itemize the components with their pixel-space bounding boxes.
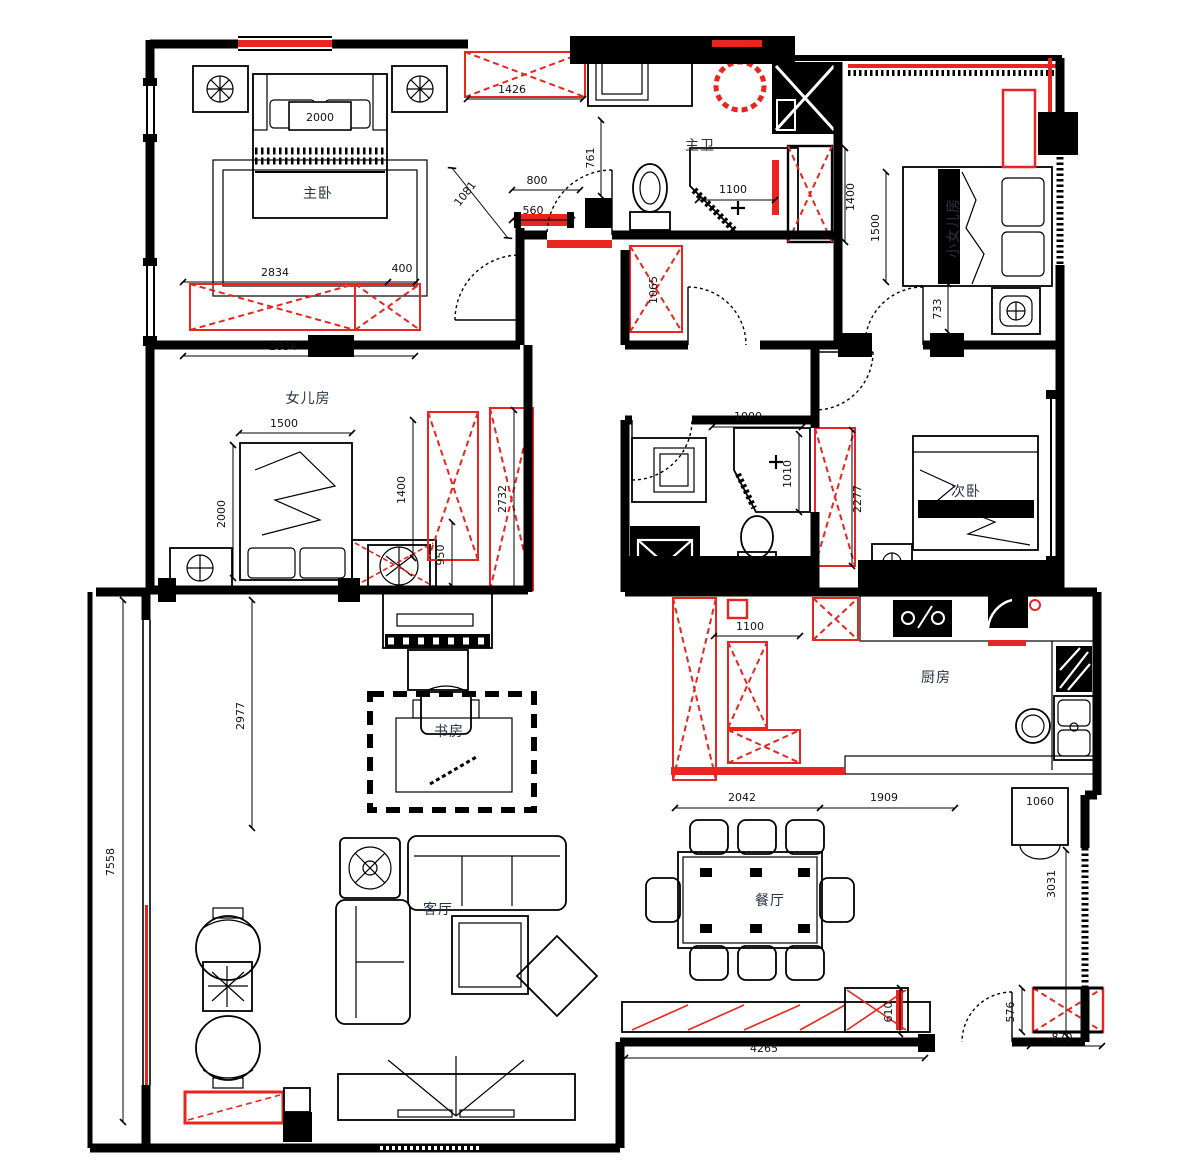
room-label-second-bedroom: 次卧 bbox=[951, 484, 981, 500]
kitchen-sink bbox=[1054, 696, 1094, 760]
planter-box bbox=[203, 962, 252, 1011]
kitchen-bin bbox=[1016, 709, 1050, 743]
tv-cabinet bbox=[338, 1056, 575, 1120]
bath-bin bbox=[585, 198, 612, 228]
chaise-sofa bbox=[336, 900, 410, 1024]
study-rug bbox=[370, 694, 534, 810]
dim-kitchen-counter: 1100 bbox=[736, 620, 764, 633]
wardrobe-x-master bbox=[190, 284, 420, 330]
dim-second-cabinet: 2277 bbox=[851, 485, 864, 513]
dim-entry-depth: 576 bbox=[1004, 1002, 1017, 1023]
dim-daughter-bed-l: 2000 bbox=[215, 500, 228, 528]
kitchen-cabinet-x3 bbox=[813, 598, 858, 640]
floor-plan-drawing: 2000 2834 400 2834 1426 761 800 560 1081… bbox=[0, 0, 1200, 1168]
bath2-vanity bbox=[632, 438, 706, 502]
side-table-diamond bbox=[517, 936, 597, 1016]
dim-hall-cabinet: 1065 bbox=[647, 276, 660, 304]
dim-dining-depth: 3031 bbox=[1045, 870, 1058, 898]
duct-shaft bbox=[772, 62, 838, 134]
door-young-daughter bbox=[865, 287, 923, 345]
dim-daughter-depth: 2732 bbox=[496, 485, 509, 513]
study-console bbox=[383, 590, 492, 648]
kitchen-cabinet-x2 bbox=[728, 730, 800, 763]
door-center-bath bbox=[632, 420, 692, 480]
column bbox=[283, 1112, 312, 1142]
lounge-chair-2 bbox=[196, 1016, 260, 1088]
sofa-three-seat bbox=[408, 836, 566, 910]
nightstand-left bbox=[193, 66, 248, 112]
dim-small-bed: 1500 bbox=[869, 214, 882, 242]
stove bbox=[893, 600, 952, 637]
room-label-living: 客厅 bbox=[423, 901, 453, 918]
door-second-bedroom bbox=[815, 352, 873, 410]
dim-kitchen-sink: 1060 bbox=[1026, 795, 1054, 808]
room-label-young-daughter: 小女儿房 bbox=[945, 198, 962, 258]
fridge bbox=[1056, 646, 1092, 692]
kitchen-red-counter-edge bbox=[671, 767, 845, 775]
door-hall bbox=[688, 287, 746, 345]
dim-entry-cabinet: 610 bbox=[882, 1002, 895, 1023]
dim-daughter-cabinet: 1400 bbox=[395, 476, 408, 504]
dim-daughter-top: 2834 bbox=[269, 340, 297, 353]
young-daughter-bed bbox=[903, 167, 1052, 286]
dim-master-offset: 400 bbox=[392, 262, 413, 275]
dim-closet-top: 1426 bbox=[498, 83, 526, 96]
dim-diagonal: 1081 bbox=[452, 179, 479, 209]
second-wardrobe-x bbox=[815, 428, 855, 566]
room-label-study: 书房 bbox=[434, 724, 464, 740]
room-label-master-bath: 主卫 bbox=[685, 138, 715, 154]
room-label-dining: 餐厅 bbox=[755, 893, 785, 909]
dim-kitchen-right: 1909 bbox=[870, 791, 898, 804]
room-label-master-bedroom: 主卧 bbox=[303, 186, 333, 202]
dim-living-left: 2977 bbox=[234, 702, 247, 730]
dim-small-side: 733 bbox=[931, 299, 944, 320]
desk-outline-red bbox=[1003, 90, 1035, 167]
dim-bath-depth: 761 bbox=[584, 148, 597, 169]
room-label-daughter: 女儿房 bbox=[286, 390, 331, 407]
kitchen-cabinet-x1 bbox=[728, 642, 767, 728]
study-desk bbox=[408, 650, 468, 690]
kitchen-red-square bbox=[728, 600, 747, 618]
entrance-cabinet-x bbox=[1033, 988, 1103, 1032]
dim-bath2-width: 1000 bbox=[734, 410, 762, 423]
door-master-bedroom bbox=[455, 255, 520, 320]
dim-bath-cabinet: 1400 bbox=[844, 183, 857, 211]
toilet-master bbox=[630, 164, 670, 230]
dim-daughter-dresser: 950 bbox=[434, 545, 447, 566]
dim-shower-width: 1100 bbox=[719, 183, 747, 196]
swivel-armchair bbox=[340, 838, 400, 898]
dim-living-height: 7558 bbox=[104, 848, 117, 876]
daughter-wardrobe-x1 bbox=[428, 412, 478, 560]
bath-door-sill bbox=[547, 240, 612, 248]
coffee-table bbox=[452, 916, 528, 994]
dim-bed-master: 2000 bbox=[306, 111, 334, 124]
room-label-kitchen: 厨房 bbox=[921, 670, 951, 686]
dim-entry-width: 870 bbox=[1052, 1031, 1073, 1044]
young-daughter-nightstand bbox=[992, 288, 1040, 334]
dim-master-width: 2834 bbox=[261, 266, 289, 279]
entry-tall-cabinet bbox=[845, 988, 908, 1032]
lounge-chair-1 bbox=[196, 908, 260, 980]
round-mirror bbox=[716, 62, 764, 110]
red-marker bbox=[1030, 600, 1040, 610]
kitchen-cabinet-tall bbox=[673, 598, 716, 780]
dim-bath2-depth: 1010 bbox=[781, 460, 794, 488]
daughter-nightstand bbox=[170, 548, 232, 592]
dim-kitchen-left: 2042 bbox=[728, 791, 756, 804]
dining-table-set bbox=[646, 820, 854, 980]
daughter-bed bbox=[240, 443, 352, 580]
dim-hall-width: 4265 bbox=[750, 1042, 778, 1055]
floor-plan-sheet: 2000 2834 400 2834 1426 761 800 560 1081… bbox=[0, 0, 1200, 1168]
dim-daughter-bed-w: 1500 bbox=[270, 417, 298, 430]
dim-bath-w2: 560 bbox=[523, 204, 544, 217]
dim-bath-w1: 800 bbox=[527, 174, 548, 187]
kitchen-corner-unit bbox=[988, 596, 1028, 646]
nightstand-right bbox=[392, 66, 447, 112]
bath-cabinet-x bbox=[772, 146, 832, 242]
